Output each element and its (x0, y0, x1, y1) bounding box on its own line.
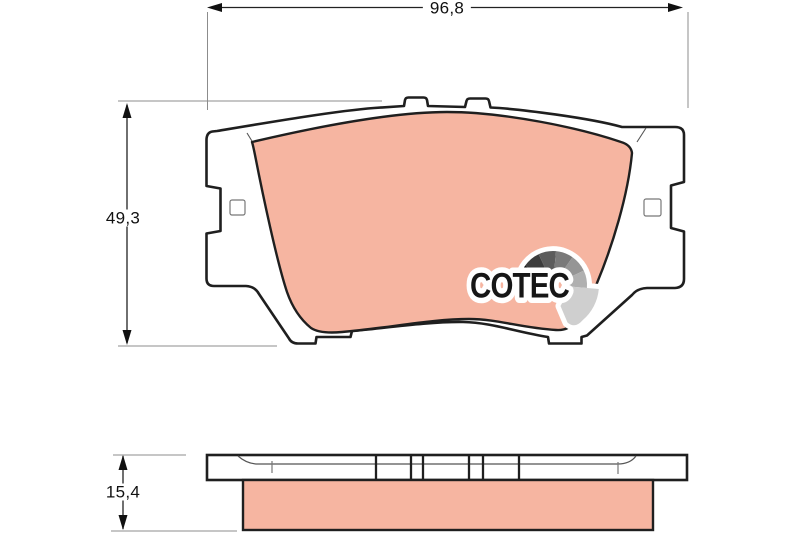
abutment-notch-left (230, 200, 245, 215)
dim-thickness-label: 15,4 (99, 484, 147, 501)
pad-front-view (207, 98, 685, 344)
arrow-left-icon (207, 3, 222, 12)
abutment-notch-right (644, 199, 661, 216)
pad-side-view (207, 455, 687, 530)
logo-text: COTEC (470, 267, 570, 306)
dim-width-label: 96,8 (423, 0, 471, 17)
backplate-side (207, 455, 687, 480)
arrow-down-icon (119, 515, 128, 530)
arrow-up-icon (123, 103, 132, 118)
brake-pad-drawing: COTEC (0, 0, 800, 533)
technical-drawing-page: COTEC 96,8 49,3 15,4 (0, 0, 800, 533)
dim-width (207, 3, 688, 110)
arrow-right-icon (668, 3, 683, 12)
friction-material-side (243, 480, 653, 530)
arrow-down-icon (123, 330, 132, 345)
arrow-up-icon (119, 455, 128, 470)
dim-height-label: 49,3 (99, 210, 147, 227)
